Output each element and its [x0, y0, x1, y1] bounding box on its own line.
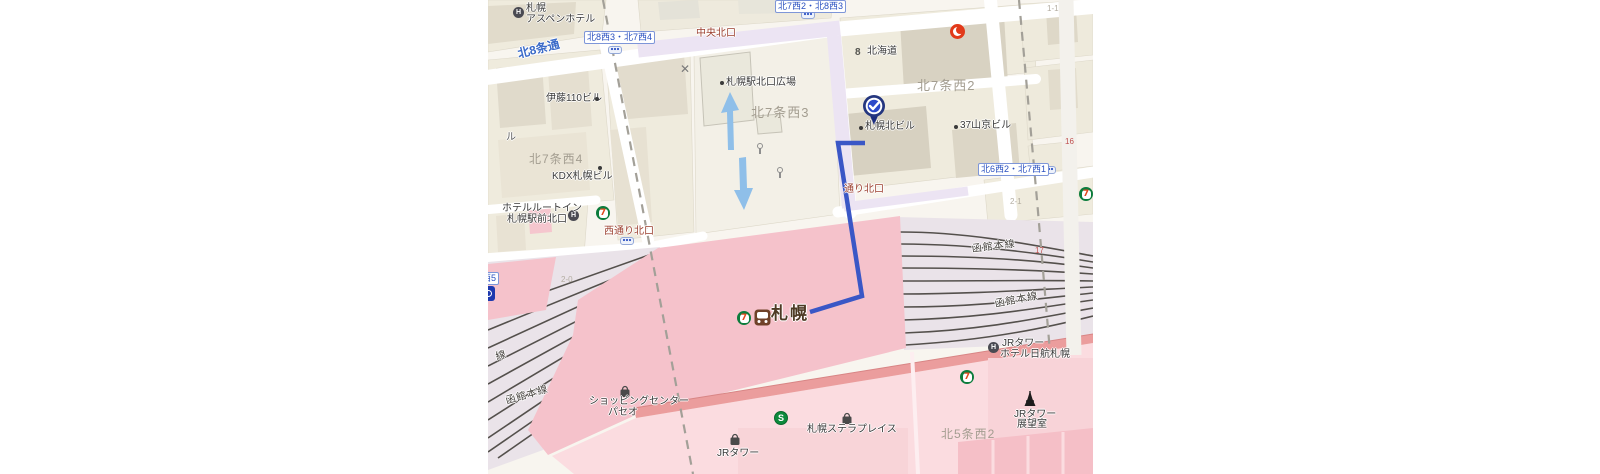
- hotel-icon: H: [988, 342, 999, 353]
- poi-label-kitaguchi-plaza: 札幌駅北口広場: [726, 77, 796, 88]
- rail-yard-right: [896, 217, 1093, 350]
- plot-number: 16: [1065, 138, 1074, 147]
- poi-dot: [598, 166, 602, 170]
- seven-eleven-icon: 7: [1079, 187, 1093, 201]
- poi-dot: [595, 97, 599, 101]
- poi-label-observatory-2: 展望室: [1017, 419, 1047, 430]
- area-label-kita7-nishi2: 北7条西2: [917, 79, 975, 93]
- facility-icon: [756, 143, 764, 154]
- area-label-kita7-nishi3: 北7条西3: [751, 106, 809, 120]
- shopping-bag-icon: [729, 433, 741, 446]
- x-mark: ✕: [680, 63, 690, 76]
- seven-eleven-icon: 7: [737, 311, 751, 325]
- hotel-icon: H: [513, 7, 524, 18]
- area-label-kita5-nishi2: 北5条西2: [941, 428, 995, 441]
- poi-label-paseo-2: パセオ: [608, 407, 638, 418]
- intersection-label-partial: 西5: [488, 272, 499, 285]
- intersection-label: 北6西2・北7西1: [978, 163, 1049, 176]
- poi-label-aspen-hotel-2: アスペンホテル: [526, 14, 595, 25]
- map-viewport: H H H 7 7 7 7 S 8 札幌 アスペンホテル 北8西3・北7西4 北…: [0, 0, 1600, 474]
- exit-label-nishidori-kitaguchi: 西通り北口: [604, 226, 654, 237]
- poi-label-nikko-hotel-2: ホテル日航札幌: [1000, 349, 1070, 360]
- facility-icon: [776, 167, 784, 178]
- poi-label-kdx: KDX札幌ビル: [552, 171, 613, 182]
- plot-number: 17: [1035, 247, 1044, 256]
- area-label-kita7-nishi4: 北7条西4: [529, 153, 583, 166]
- intersection-label: 北7西2・北8西3: [775, 0, 846, 13]
- exit-label-chuo-kitaguchi: 中央北口: [696, 28, 736, 39]
- poi-dot: [859, 126, 863, 130]
- poi-label-aspen-hotel: 札幌: [526, 3, 546, 14]
- subway-station-icon: S: [774, 411, 788, 425]
- poi-dot: [720, 81, 724, 85]
- seven-eleven-icon: 7: [596, 206, 610, 220]
- poi-label-sapporo-kita-bldg: 札幌北ビル: [865, 121, 915, 132]
- poi-label-partial: ル: [506, 132, 516, 143]
- train-station-icon: [754, 309, 771, 326]
- poi-label-routeinn-2: 札幌駅前北口: [507, 214, 567, 225]
- poi-label-hokkaido: 北海道: [867, 46, 897, 57]
- plot-number: 2-0: [561, 276, 573, 285]
- partial-subway-icon: [488, 286, 495, 301]
- poi-label-nikko-hotel: JRタワー: [1002, 338, 1044, 349]
- exit-label-dori-kitaguchi: 通り北口: [844, 184, 884, 195]
- poi-label-stellar-place: 札幌ステラプレイス: [807, 424, 897, 435]
- seven-eleven-icon: 7: [960, 370, 974, 384]
- tower-icon: [1023, 391, 1037, 408]
- plot-number: 1-1: [1047, 5, 1059, 14]
- traffic-light-icon: [620, 237, 634, 245]
- map-base-art: [488, 0, 1093, 474]
- plot-number: 2-1: [1010, 198, 1022, 207]
- overpass-road: [1066, 0, 1074, 355]
- poi-label-jr-tower: JRタワー: [717, 448, 759, 459]
- poi-dot: [954, 125, 958, 129]
- intersection-label: 北8西3・北7西4: [584, 31, 655, 44]
- poi-label-paseo: ショッピングセンター: [589, 396, 689, 407]
- government-office-icon: 8: [855, 47, 861, 58]
- company-logo-icon: [950, 24, 965, 39]
- map-canvas[interactable]: H H H 7 7 7 7 S 8 札幌 アスペンホテル 北8西3・北7西4 北…: [488, 0, 1093, 474]
- poi-label-ito110: 伊藤110ビル: [546, 93, 602, 104]
- traffic-light-icon: [608, 46, 622, 54]
- poi-label-sankyo-bldg: 37山京ビル: [960, 120, 1011, 131]
- poi-label-routeinn: ホテルルートイン: [502, 203, 582, 214]
- station-name-label: 札幌: [771, 305, 809, 324]
